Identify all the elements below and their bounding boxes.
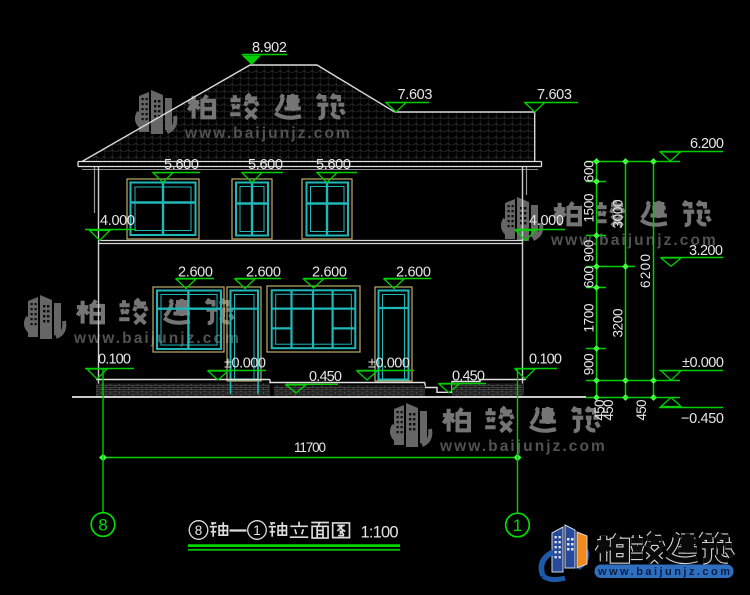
svg-text:±0.000: ±0.000	[224, 356, 266, 372]
svg-text:1: 1	[253, 523, 261, 538]
svg-text:5.600: 5.600	[248, 157, 283, 173]
svg-text:4.000: 4.000	[529, 213, 564, 229]
svg-text:1:100: 1:100	[361, 524, 399, 542]
svg-text:5.600: 5.600	[316, 157, 351, 173]
svg-text:0.450: 0.450	[309, 369, 342, 385]
svg-text:6.200: 6.200	[690, 136, 724, 152]
svg-text:7.603: 7.603	[537, 87, 572, 103]
svg-text:1700: 1700	[582, 304, 597, 333]
svg-text:4.000: 4.000	[100, 213, 135, 229]
svg-text:8: 8	[98, 516, 107, 535]
svg-text:900: 900	[582, 353, 597, 375]
svg-text:900: 900	[582, 240, 597, 262]
svg-text:−0.450: −0.450	[681, 411, 724, 427]
svg-text:±0.000: ±0.000	[682, 355, 724, 371]
svg-text:3200: 3200	[611, 309, 626, 338]
svg-text:3.200: 3.200	[689, 243, 723, 259]
svg-text:6200: 6200	[638, 254, 653, 288]
svg-text:8: 8	[195, 523, 203, 538]
svg-text:600: 600	[582, 160, 597, 182]
svg-text:7.603: 7.603	[398, 87, 433, 103]
svg-text:450: 450	[634, 400, 649, 421]
svg-text:±0.000: ±0.000	[368, 356, 410, 372]
svg-text:11700: 11700	[294, 440, 326, 455]
svg-text:600: 600	[582, 266, 597, 288]
svg-text:1500: 1500	[582, 194, 597, 223]
svg-text:1: 1	[513, 516, 522, 535]
svg-text:0.450: 0.450	[452, 369, 485, 385]
svg-text:450: 450	[601, 400, 616, 421]
svg-text:5.600: 5.600	[164, 157, 199, 173]
svg-text:0.100: 0.100	[98, 352, 131, 368]
svg-text:3000: 3000	[611, 200, 626, 229]
svg-text:0.100: 0.100	[529, 352, 562, 368]
svg-text:8.902: 8.902	[252, 40, 287, 56]
